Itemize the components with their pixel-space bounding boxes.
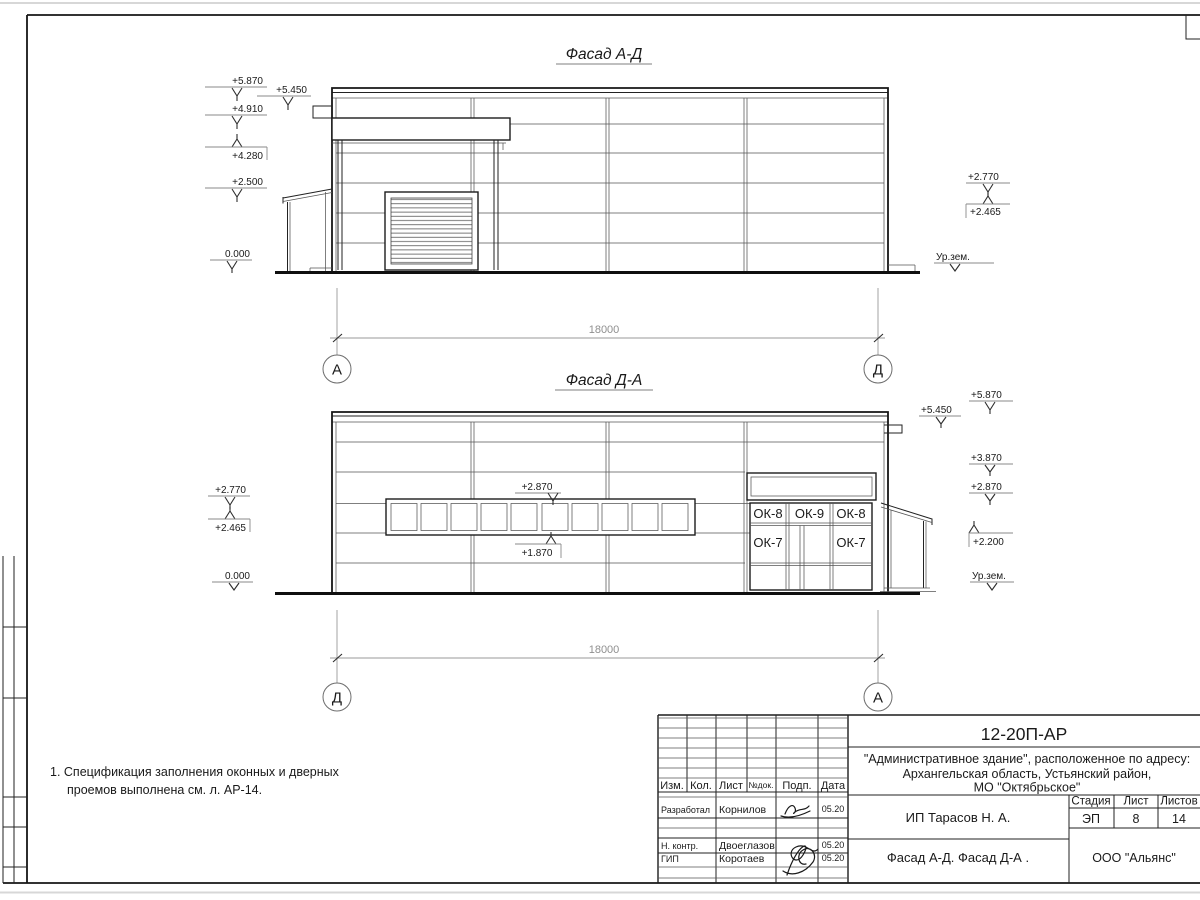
entrance-fascia (332, 118, 510, 140)
facade-drawing-canvas: Фасад А-Д +5.870 +4.910 (0, 0, 1200, 900)
project-name-line2: Архангельская область, Устьянский район, (903, 767, 1152, 781)
project-name-line1: "Административное здание", расположенное… (864, 752, 1190, 766)
window-label-ok9: ОК-9 (795, 506, 824, 521)
roof-vent-left (313, 106, 332, 118)
listov-value: 14 (1172, 812, 1186, 826)
sheet-name: Фасад А-Д. Фасад Д-А . (887, 850, 1029, 865)
side-canopy-left (283, 189, 332, 272)
elevation-mark-0000-da: 0.000 (225, 571, 250, 582)
elevation-mark-2500: +2.500 (232, 177, 263, 188)
window-label-ok7-left: ОК-7 (753, 535, 782, 550)
axis-label-d2: Д (332, 690, 342, 707)
facade-ad-drawing: Фасад А-Д +5.870 +4.910 (205, 46, 1010, 383)
elevation-mark-2465: +2.465 (970, 207, 1001, 218)
band-mark-2870: +2.870 (522, 482, 553, 493)
document-code: 12-20П-АР (981, 724, 1068, 744)
facade-da-drawing: Фасад Д-А ОК-8 ОК-9 (208, 372, 1014, 711)
band-mark-1870: +1.870 (522, 548, 553, 559)
name-gip: Коротаев (719, 853, 765, 865)
listov-label: Листов (1160, 796, 1197, 808)
elevation-mark-2770: +2.770 (968, 172, 999, 183)
col-header-list: Лист (719, 780, 743, 792)
elevation-mark-3870-da: +3.870 (971, 453, 1002, 464)
dimension-text-da: 18000 (589, 644, 620, 656)
window-label-ok8-right: ОК-8 (836, 506, 865, 521)
list-value: 8 (1133, 812, 1140, 826)
window-label-ok7-right: ОК-7 (836, 535, 865, 550)
stage-label: Стадия (1071, 796, 1110, 808)
stage-value: ЭП (1082, 812, 1100, 826)
dimension-ad: 18000 А Д (323, 288, 892, 383)
elevation-mark-0000: 0.000 (225, 249, 250, 260)
signature-developer (781, 806, 810, 818)
date-developer: 05.20 (822, 804, 845, 814)
axis-label-d: Д (873, 362, 883, 379)
note-line-2: проемов выполнена см. л. АР-14. (67, 783, 262, 797)
roller-door-slats (391, 198, 472, 264)
col-header-data: Дата (821, 780, 846, 792)
elevation-mark-2770-da: +2.770 (215, 485, 246, 496)
col-header-ndok: №док. (749, 780, 774, 790)
note-line-1: 1. Спецификация заполнения оконных и две… (50, 765, 340, 779)
ground-level-label-ad: Ур.зем. (936, 252, 970, 263)
facade-ad-title: Фасад А-Д (566, 46, 643, 63)
name-ncontrol: Двоеглазов (719, 840, 775, 852)
notes: 1. Спецификация заполнения оконных и две… (50, 765, 340, 797)
ground-level-label-da: Ур.зем. (972, 571, 1006, 582)
elevation-mark-4280: +4.280 (232, 151, 263, 162)
axis-label-a: А (332, 362, 342, 379)
signature-gip (783, 846, 818, 875)
date-ncontrol: 05.20 (822, 840, 845, 850)
col-header-izm: Изм. (660, 780, 684, 792)
role-gip: ГИП (661, 854, 679, 864)
company-name: ООО "Альянс" (1092, 851, 1176, 865)
facade-da-title: Фасад Д-А (566, 372, 643, 389)
storefront: ОК-8 ОК-9 ОК-8 ОК-7 ОК-7 (747, 473, 876, 590)
dimension-da: 18000 Д А (323, 610, 892, 711)
role-developer: Разработал (661, 805, 710, 815)
project-name-line3: МО "Октябрьское" (974, 781, 1081, 795)
axis-label-a2: А (873, 690, 883, 707)
elevation-mark-2465-da: +2.465 (215, 523, 246, 534)
name-developer: Корнилов (719, 804, 767, 816)
col-header-podp: Подп. (782, 780, 811, 792)
dimension-text-ad: 18000 (589, 324, 620, 336)
client-name: ИП Тарасов Н. А. (906, 810, 1011, 825)
elevation-mark-5450-da: +5.450 (921, 405, 952, 416)
side-canopy-right (880, 503, 936, 592)
elevation-mark-2200-da: +2.200 (973, 537, 1004, 548)
title-block: Изм. Кол. Лист №док. Подп. Дата Разработ… (658, 715, 1200, 883)
binding-margin-stamps (3, 556, 27, 883)
corner-format-box (1186, 15, 1200, 39)
window-band (386, 499, 695, 535)
roof-vent-right (884, 425, 902, 433)
list-label: Лист (1124, 796, 1150, 808)
elevation-mark-2870-da: +2.870 (971, 482, 1002, 493)
date-gip: 05.20 (822, 853, 845, 863)
elevation-mark-5870-da: +5.870 (971, 390, 1002, 401)
role-ncontrol: Н. контр. (661, 841, 698, 851)
elevation-mark-4910: +4.910 (232, 104, 263, 115)
window-label-ok8-left: ОК-8 (753, 506, 782, 521)
elevation-mark-5870: +5.870 (232, 76, 263, 87)
elevation-mark-5450: +5.450 (276, 85, 307, 96)
drawing-sheet: Фасад А-Д +5.870 +4.910 (0, 0, 1200, 900)
col-header-kol: Кол. (690, 780, 712, 792)
elevation-marks-da: +2.770 +2.465 0.000 +5.870 +5.450 +3.870… (208, 390, 1014, 590)
